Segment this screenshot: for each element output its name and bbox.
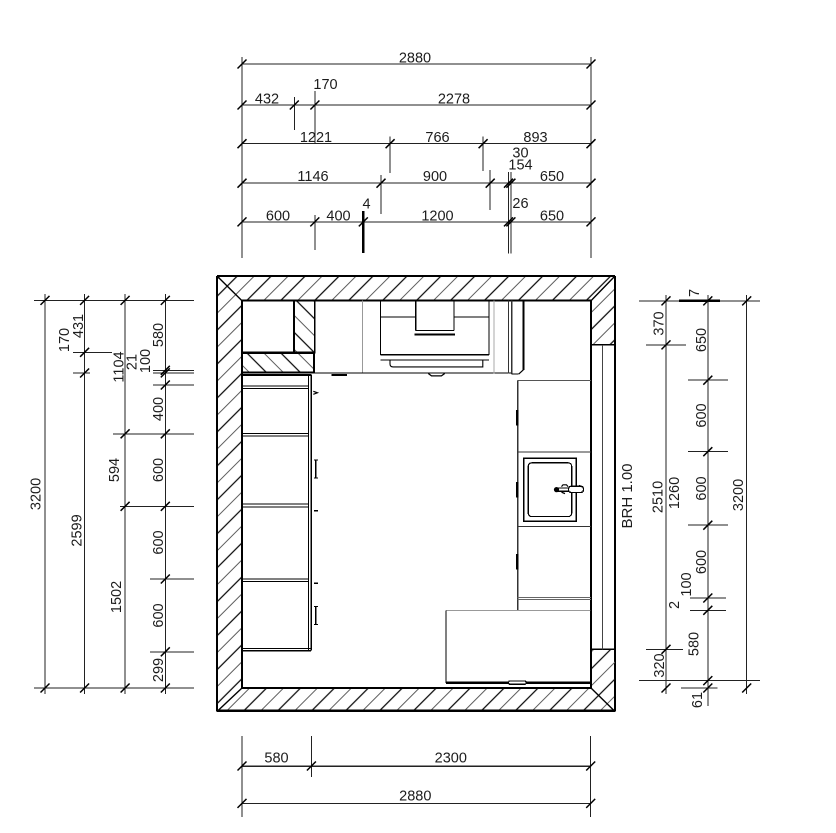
svg-text:3200: 3200 <box>29 478 45 510</box>
svg-text:2880: 2880 <box>399 788 431 804</box>
svg-text:1200: 1200 <box>421 209 453 225</box>
svg-text:400: 400 <box>326 209 350 225</box>
svg-text:320: 320 <box>652 653 668 677</box>
svg-text:4: 4 <box>362 197 370 213</box>
svg-text:600: 600 <box>151 458 167 482</box>
svg-text:1502: 1502 <box>109 581 125 613</box>
svg-text:61: 61 <box>690 692 706 708</box>
svg-text:2880: 2880 <box>399 50 431 66</box>
svg-text:100: 100 <box>679 572 695 596</box>
svg-text:154: 154 <box>508 158 532 174</box>
svg-text:1221: 1221 <box>300 130 332 146</box>
svg-text:431: 431 <box>71 314 87 338</box>
svg-text:600: 600 <box>694 476 710 500</box>
svg-text:2599: 2599 <box>70 514 86 546</box>
svg-text:2278: 2278 <box>438 92 470 108</box>
svg-text:2: 2 <box>667 601 683 609</box>
svg-text:432: 432 <box>255 92 279 108</box>
svg-text:400: 400 <box>151 397 167 421</box>
svg-text:600: 600 <box>151 530 167 554</box>
svg-text:650: 650 <box>694 328 710 352</box>
svg-text:2510: 2510 <box>651 481 667 513</box>
svg-text:600: 600 <box>694 403 710 427</box>
svg-text:650: 650 <box>540 169 564 185</box>
svg-text:766: 766 <box>425 130 449 146</box>
svg-text:2300: 2300 <box>435 751 467 767</box>
svg-text:893: 893 <box>523 130 547 146</box>
svg-text:299: 299 <box>151 658 167 682</box>
svg-text:7: 7 <box>687 289 703 297</box>
svg-text:900: 900 <box>423 169 447 185</box>
svg-text:600: 600 <box>151 603 167 627</box>
svg-text:26: 26 <box>512 196 528 212</box>
svg-text:3200: 3200 <box>731 479 747 511</box>
svg-text:580: 580 <box>264 751 288 767</box>
svg-text:650: 650 <box>540 209 564 225</box>
svg-text:600: 600 <box>694 550 710 574</box>
svg-text:580: 580 <box>151 323 167 347</box>
svg-text:170: 170 <box>57 328 73 352</box>
svg-text:594: 594 <box>107 458 123 482</box>
svg-text:370: 370 <box>652 311 668 335</box>
svg-text:1146: 1146 <box>297 169 328 185</box>
svg-text:170: 170 <box>313 77 337 93</box>
svg-text:BRH 1.00: BRH 1.00 <box>619 463 636 528</box>
svg-text:100: 100 <box>138 349 154 373</box>
svg-text:600: 600 <box>266 209 290 225</box>
svg-text:580: 580 <box>687 632 703 656</box>
svg-text:1260: 1260 <box>667 477 683 509</box>
